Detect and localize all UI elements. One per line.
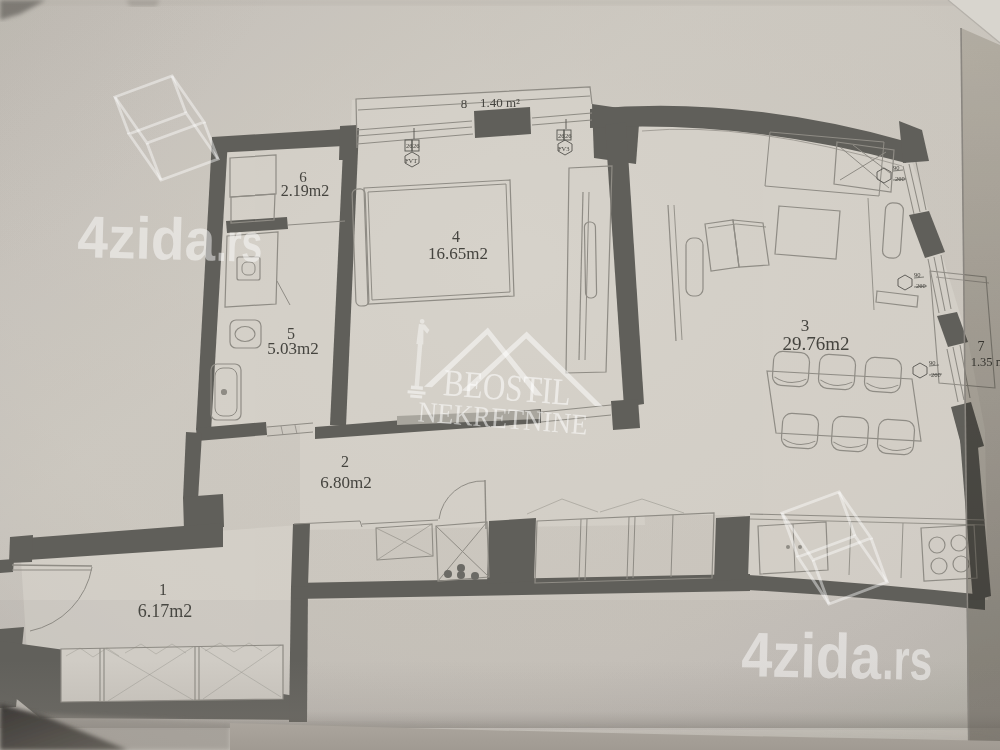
svg-text:260: 260 [931, 371, 941, 378]
svg-text:29.76m2: 29.76m2 [782, 333, 849, 354]
svg-text:.rs: .rs [216, 212, 264, 273]
svg-text:FVT: FVT [405, 157, 417, 164]
svg-text:8: 8 [461, 96, 468, 111]
svg-text:16.65m2: 16.65m2 [428, 244, 488, 263]
svg-text:4: 4 [452, 228, 460, 245]
svg-text:90: 90 [914, 271, 921, 278]
svg-text:6.80m2: 6.80m2 [320, 473, 371, 492]
svg-text:FV3: FV3 [558, 145, 570, 152]
svg-text:260: 260 [895, 175, 905, 182]
svg-text:5.03m2: 5.03m2 [267, 339, 318, 358]
svg-text:26: 26 [565, 132, 572, 139]
svg-text:90: 90 [893, 164, 900, 171]
svg-text:2: 2 [341, 453, 349, 470]
svg-text:90: 90 [929, 359, 936, 366]
svg-text:2.19m2: 2.19m2 [281, 182, 329, 199]
svg-text:26: 26 [413, 142, 420, 149]
svg-text:4zida: 4zida [77, 204, 218, 274]
svg-text:4zida: 4zida [741, 619, 883, 692]
svg-text:260: 260 [916, 282, 926, 289]
svg-text:.rs: .rs [882, 627, 933, 692]
svg-text:1.40 m²: 1.40 m² [480, 96, 520, 110]
svg-text:1: 1 [159, 581, 167, 598]
